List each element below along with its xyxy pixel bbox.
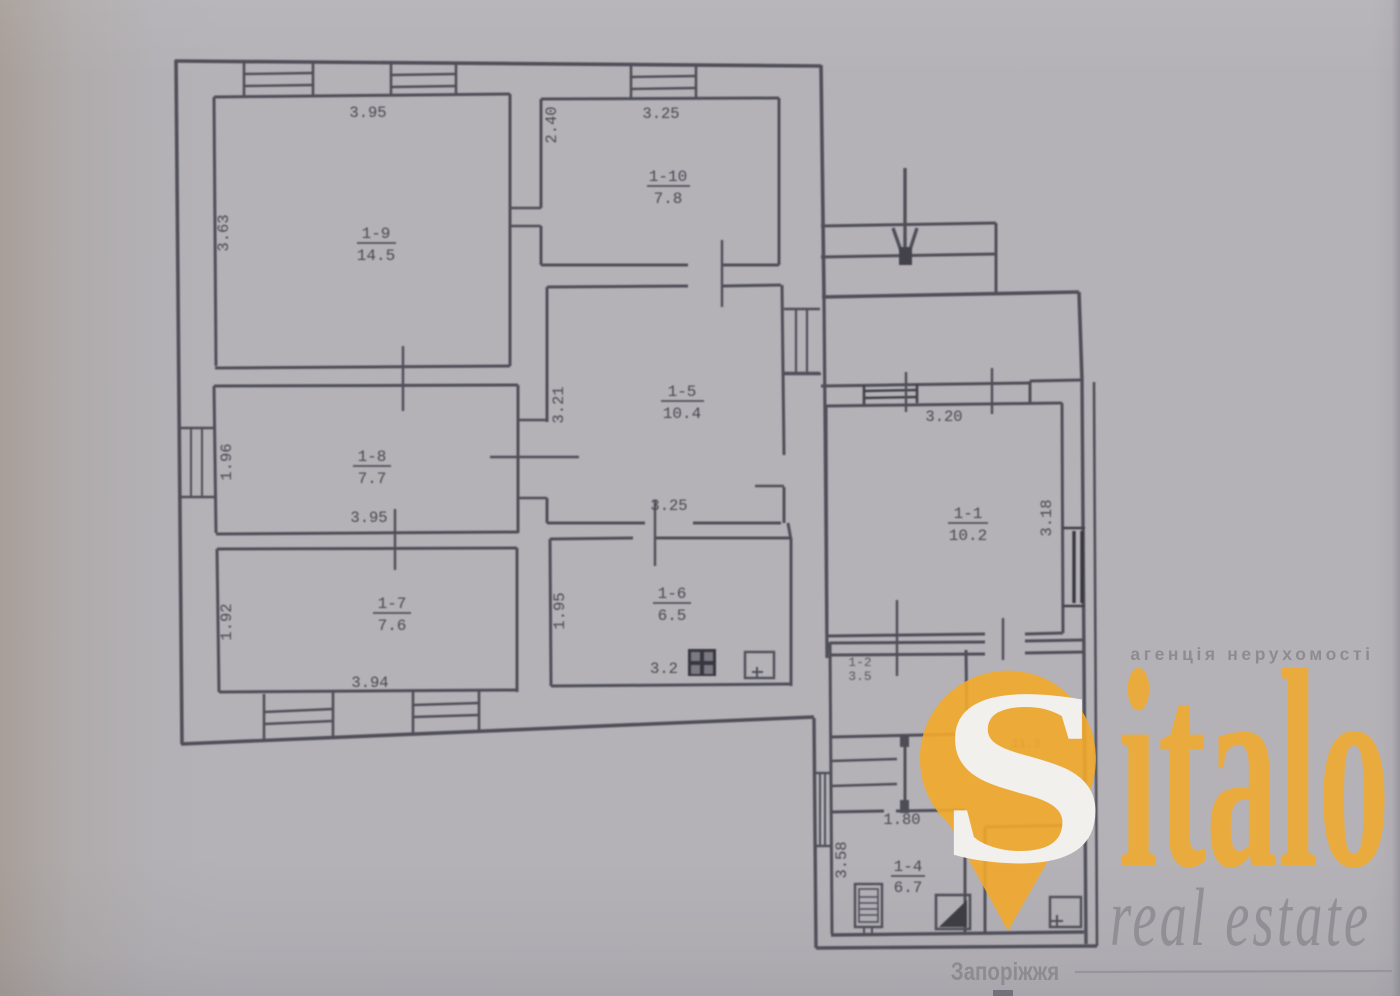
svg-text:S: S xyxy=(938,637,1109,916)
svg-text:Запоріжжя: Запоріжжя xyxy=(951,957,1059,985)
svg-text:real estate: real estate xyxy=(1110,873,1371,964)
